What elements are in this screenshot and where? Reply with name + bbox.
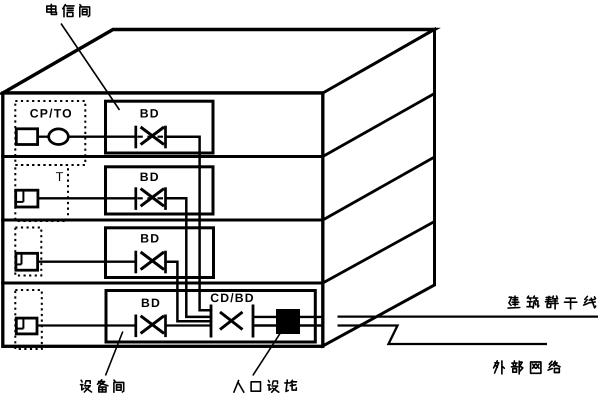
svg-text:T: T <box>56 169 64 184</box>
svg-text:BD: BD <box>140 107 160 121</box>
svg-text:BD: BD <box>140 232 160 246</box>
svg-text:BD: BD <box>140 170 160 184</box>
svg-text:CP/TO: CP/TO <box>30 107 73 121</box>
svg-text:BD: BD <box>141 296 161 310</box>
svg-text:CD/BD: CD/BD <box>210 291 255 305</box>
